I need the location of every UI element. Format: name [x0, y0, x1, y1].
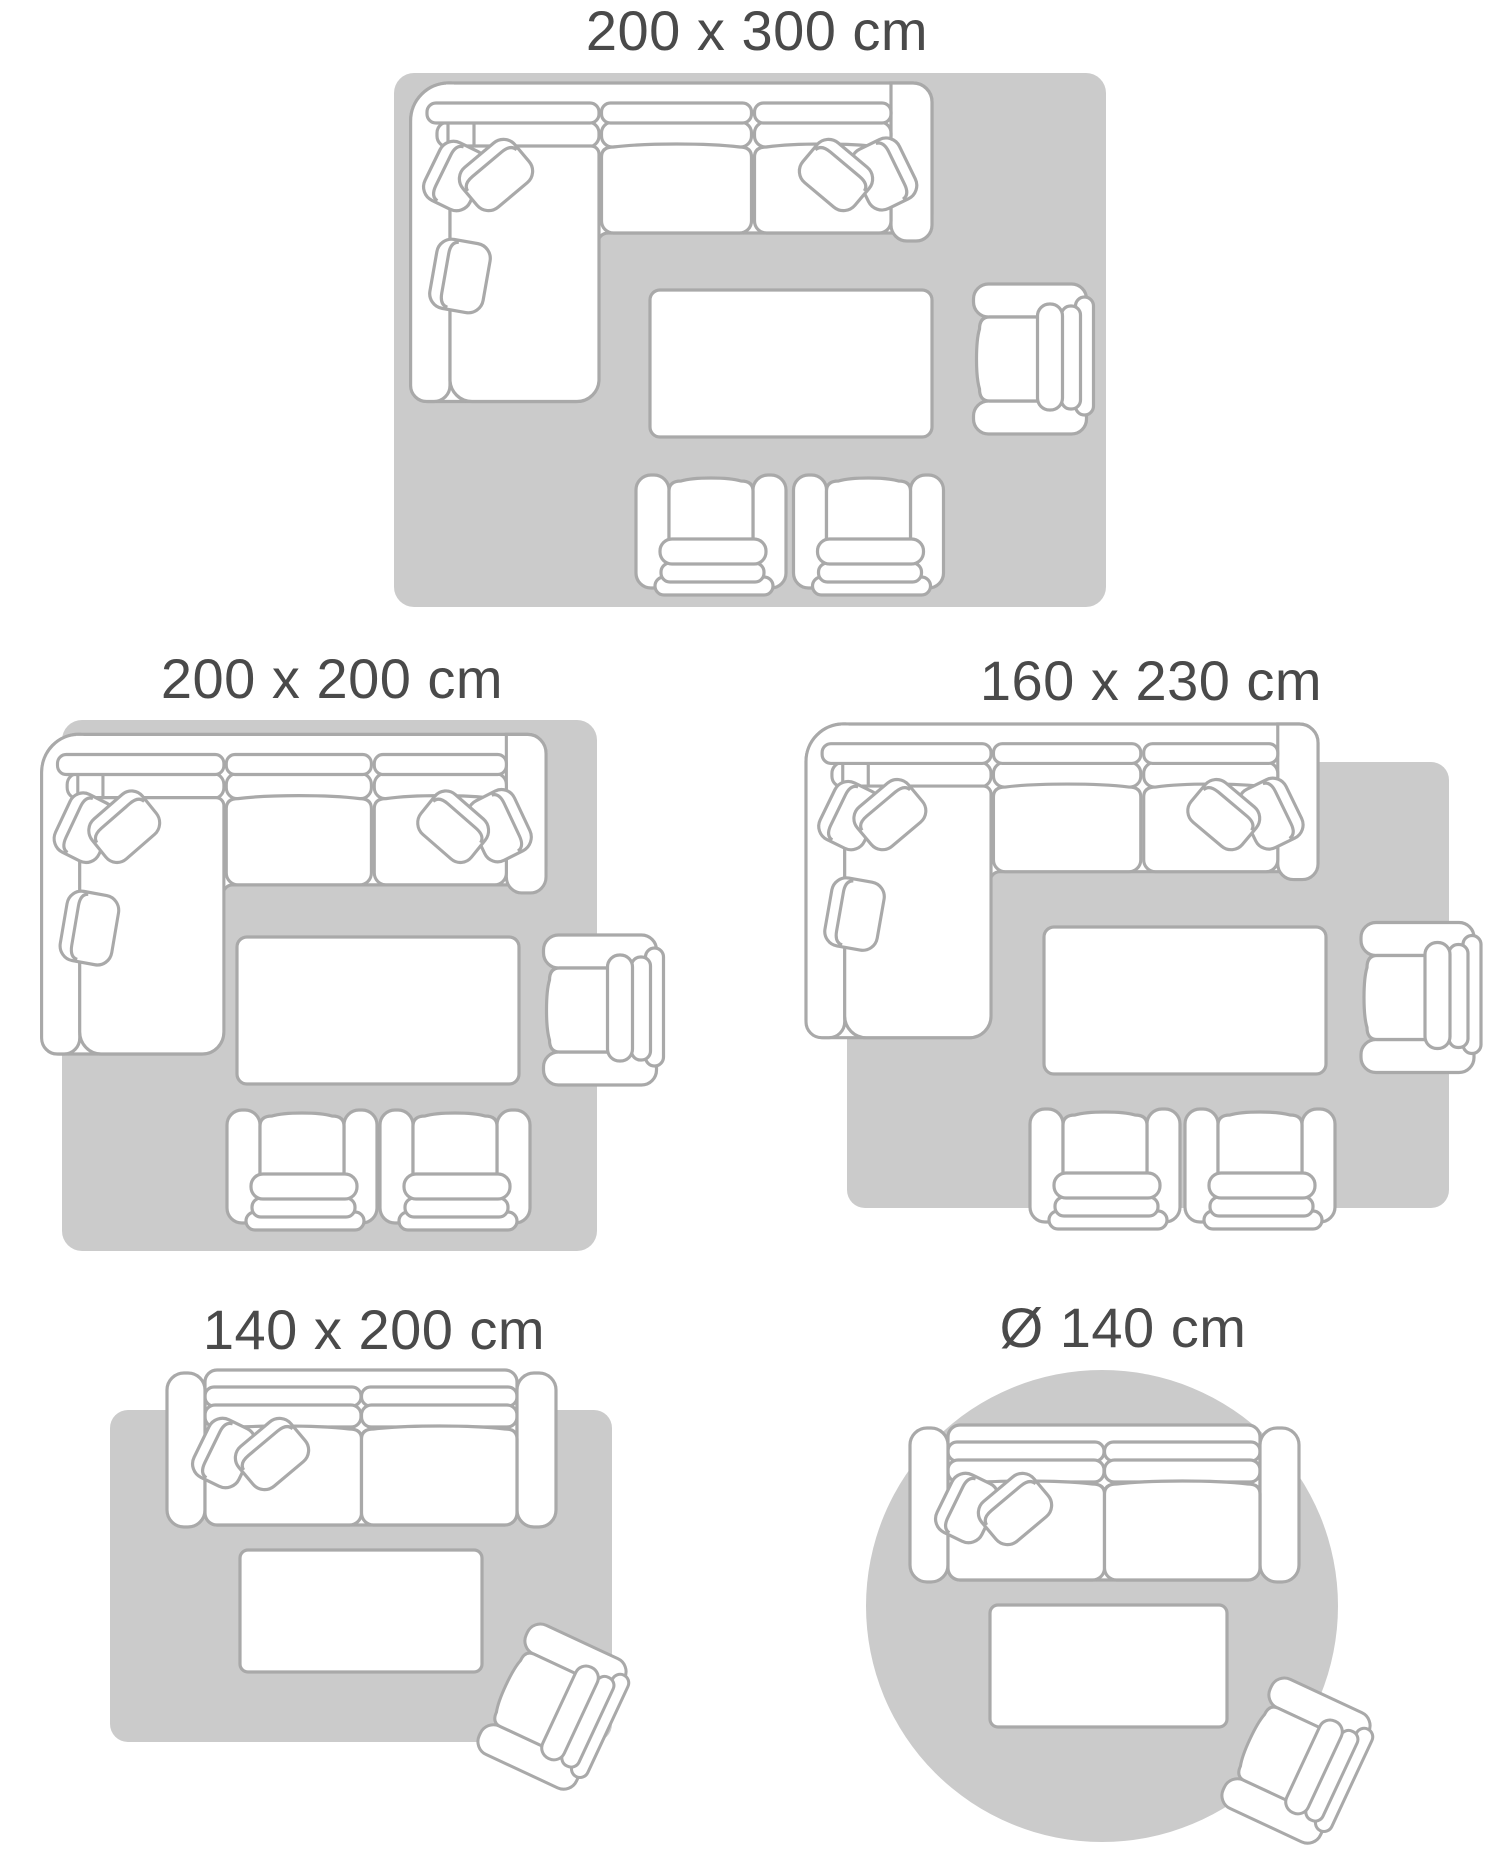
svg-text:Ø 140 cm: Ø 140 cm: [1000, 1296, 1247, 1359]
svg-text:140 x 200 cm: 140 x 200 cm: [203, 1298, 545, 1361]
svg-text:200 x 300 cm: 200 x 300 cm: [586, 0, 928, 62]
svg-text:160 x 230 cm: 160 x 230 cm: [980, 649, 1322, 712]
svg-text:200 x 200 cm: 200 x 200 cm: [161, 647, 503, 710]
